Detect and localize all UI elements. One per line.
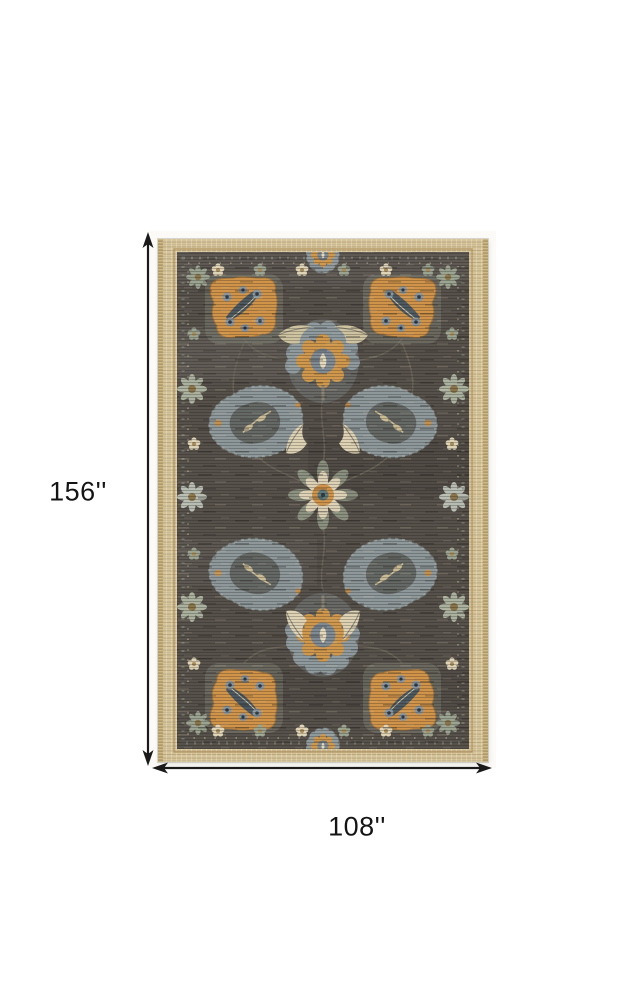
rug-photo <box>158 239 488 762</box>
height-dimension-label: 156'' <box>49 479 107 506</box>
rug-graphic <box>158 239 488 762</box>
product-dimension-image: 156'' 108'' <box>0 0 644 1000</box>
width-dimension-label: 108'' <box>328 814 386 841</box>
